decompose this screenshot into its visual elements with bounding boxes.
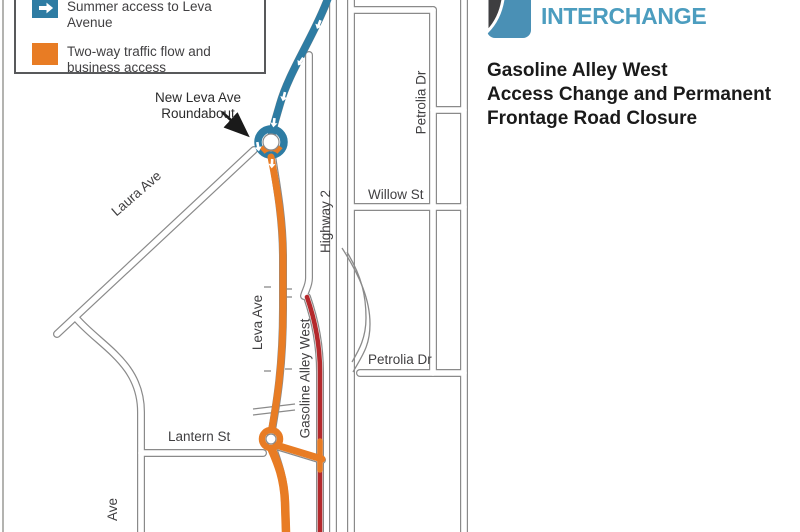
- street-label-lantern-st: Lantern St: [168, 429, 230, 444]
- callout-line2: Roundabout: [161, 106, 235, 121]
- legend-label-summer-access: Summer access to Leva Avenue: [67, 0, 254, 31]
- two-way-swatch-icon: [32, 43, 58, 65]
- street-label-highway-2: Highway 2: [318, 190, 333, 253]
- street-label-leva-ave: Leva Ave: [250, 295, 265, 350]
- street-label-petrolia-dr-south: Petrolia Dr: [368, 352, 432, 367]
- street-label-gasoline-alley-west: Gasoline Alley West: [297, 319, 312, 439]
- street-label-petrolia-dr-north: Petrolia Dr: [413, 71, 428, 135]
- legend-label-two-way: Two-way traffic flow and business access: [67, 43, 239, 76]
- legend-item-two-way: Two-way traffic flow and business access: [32, 43, 254, 76]
- highway-ramp-lines: [342, 248, 370, 372]
- title-line1: Gasoline Alley West: [487, 59, 771, 83]
- roundabout-callout: New Leva Ave Roundabout: [140, 90, 256, 122]
- page-title: Gasoline Alley West Access Change and Pe…: [487, 59, 771, 131]
- legend-item-summer-access: Summer access to Leva Avenue: [32, 0, 254, 31]
- street-label-willow-st: Willow St: [368, 187, 424, 202]
- interchange-logo-icon: [487, 0, 531, 38]
- lantern-roundabout: [262, 430, 280, 448]
- road-surfaces: [57, 0, 464, 532]
- callout-line1: New Leva Ave: [155, 90, 241, 105]
- interchange-logo-word: INTERCHANGE: [541, 3, 706, 30]
- legend-box: Summer access to Leva Avenue Two-way tra…: [14, 0, 266, 74]
- street-label-partial-ave: Ave: [105, 498, 120, 521]
- title-line3: Frontage Road Closure: [487, 107, 771, 131]
- access-change-infographic: New Leva Ave Roundabout Laura Ave Highwa…: [0, 0, 800, 532]
- title-line2: Access Change and Permanent: [487, 83, 771, 107]
- summer-access-arrow-icon: [32, 0, 58, 18]
